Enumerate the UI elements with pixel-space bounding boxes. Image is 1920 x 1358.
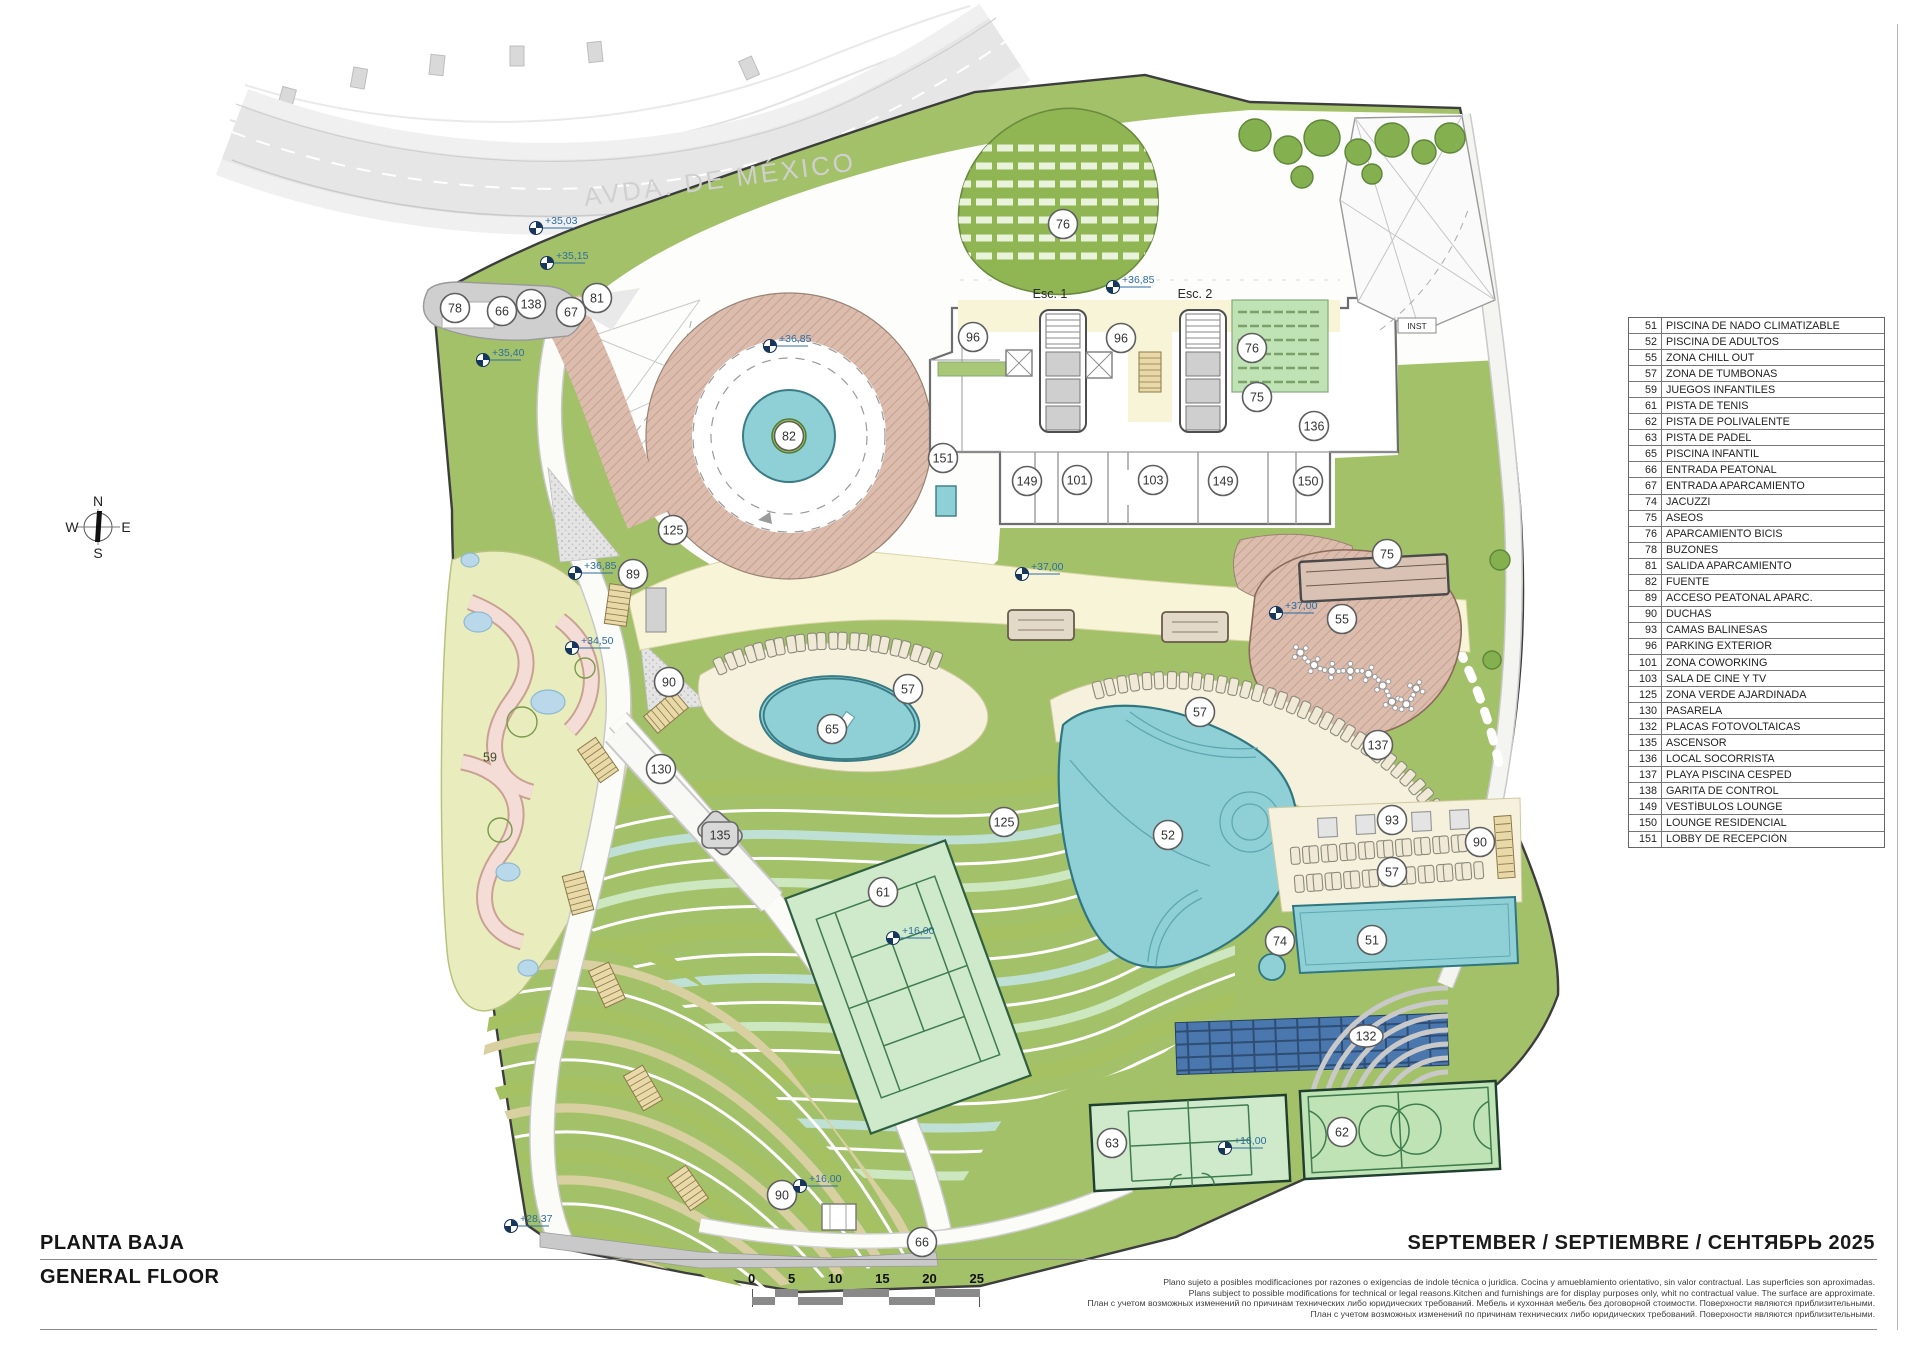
svg-text:125: 125 [663,524,684,538]
legend-item-number: 89 [1629,591,1662,606]
legend-row: 150LOUNGE RESIDENCIAL [1629,814,1884,830]
plan-label-130: 130 [647,755,676,784]
legend-item-number: 135 [1629,735,1662,750]
legend-row: 138GARITA DE CONTROL [1629,782,1884,798]
legend-item-number: 138 [1629,783,1662,798]
svg-text:N: N [93,493,103,509]
legend-row: 75ASEOS [1629,510,1884,526]
svg-text:149: 149 [1213,475,1234,489]
svg-text:+16,00: +16,00 [809,1173,842,1185]
svg-text:132: 132 [1356,1030,1377,1044]
scale-bar: 0510152025 [748,1271,984,1307]
svg-text:101: 101 [1067,474,1088,488]
legend-item-number: 51 [1629,318,1662,333]
svg-text:67: 67 [564,306,578,320]
legend-item-label: ZONA CHILL OUT [1662,352,1884,364]
sheet-title-en: GENERAL FLOOR [40,1266,219,1289]
svg-text:+37,00: +37,00 [1031,561,1064,573]
legend-item-label: ZONA COWORKING [1662,657,1884,669]
plan-label-63: 63 [1098,1129,1127,1158]
legend-row: 51PISCINA DE NADO CLIMATIZABLE [1629,318,1884,333]
svg-text:136: 136 [1304,420,1325,434]
legend-item-number: 66 [1629,462,1662,477]
plan-label-90: 90 [1466,828,1495,857]
legend-row: 81SALIDA APARCAMIENTO [1629,558,1884,574]
legend-item-label: SALA DE CINE Y TV [1662,673,1884,685]
legend-item-number: 61 [1629,398,1662,413]
legend-item-number: 90 [1629,607,1662,622]
legend-item-number: 59 [1629,382,1662,397]
legend-item-label: JACUZZI [1662,496,1884,508]
plan-label-103: 103 [1139,466,1168,495]
legend-item-label: LOUNGE RESIDENCIAL [1662,817,1884,829]
legend-item-label: JUEGOS INFANTILES [1662,384,1884,396]
svg-text:+28,37: +28,37 [520,1213,553,1225]
plan-label-74: 74 [1266,927,1295,956]
legend-item-number: 67 [1629,478,1662,493]
legend-row: 135ASCENSOR [1629,734,1884,750]
legend-item-label: PISTA DE PADEL [1662,432,1884,444]
plan-label-96: 96 [1107,324,1136,353]
legend-item-label: ACCESO PEATONAL APARC. [1662,592,1884,604]
svg-text:+16,00: +16,00 [1234,1135,1267,1147]
plan-label-138: 138 [517,290,546,319]
plan-label-65: 65 [818,715,847,744]
svg-text:125: 125 [994,816,1015,830]
svg-text:78: 78 [448,302,462,316]
legend-item-number: 93 [1629,623,1662,638]
plan-label-90: 90 [655,668,684,697]
svg-text:76: 76 [1056,218,1070,232]
svg-text:82: 82 [782,430,796,444]
svg-text:81: 81 [590,292,604,306]
page-frame-right [1897,24,1898,1330]
plan-label-125: 125 [990,808,1019,837]
plan-label-61: 61 [869,878,898,907]
legend-row: 125ZONA VERDE AJARDINADA [1629,686,1884,702]
svg-text:E: E [121,519,130,535]
svg-text:90: 90 [775,1189,789,1203]
plan-label-75: 75 [1373,540,1402,569]
scale-blocks [752,1289,980,1307]
legend-item-label: GARITA DE CONTROL [1662,785,1884,797]
plan-label-57: 57 [894,675,923,704]
legend-row: 130PASARELA [1629,702,1884,718]
svg-text:74: 74 [1273,935,1287,949]
svg-text:137: 137 [1368,739,1389,753]
plan-label-137: 137 [1364,731,1393,760]
disclaimer-text: Plano sujeto a posibles modificaciones p… [1045,1277,1875,1319]
legend-item-label: BUZONES [1662,544,1884,556]
legend-item-number: 63 [1629,430,1662,445]
legend-row: 89ACCESO PEATONAL APARC. [1629,590,1884,606]
svg-text:130: 130 [651,763,672,777]
legend-row: 149VESTÍBULOS LOUNGE [1629,798,1884,814]
plan-label-52: 52 [1154,821,1183,850]
legend-row: 52PISCINA DE ADULTOS [1629,333,1884,349]
legend-item-number: 101 [1629,655,1662,670]
svg-text:57: 57 [901,683,915,697]
svg-text:52: 52 [1161,829,1175,843]
legend-item-label: ZONA VERDE AJARDINADA [1662,689,1884,701]
plan-label-51: 51 [1358,926,1387,955]
plan-label-66: 66 [908,1228,937,1257]
legend-item-label: PISTA DE TENIS [1662,400,1884,412]
plan-label-66: 66 [488,297,517,326]
sheet-title-es: PLANTA BAJA [40,1232,184,1255]
svg-text:+16,00: +16,00 [902,925,935,937]
svg-text:75: 75 [1380,548,1394,562]
legend-item-number: 74 [1629,495,1662,510]
svg-text:96: 96 [966,331,980,345]
svg-text:66: 66 [495,305,509,319]
legend-item-number: 136 [1629,751,1662,766]
svg-text:+35,15: +35,15 [556,250,589,262]
legend-item-label: PISCINA INFANTIL [1662,448,1884,460]
svg-text:76: 76 [1245,342,1259,356]
legend-row: 57ZONA DE TUMBONAS [1629,365,1884,381]
plan-label-101: 101 [1063,466,1092,495]
plan-label-76: 76 [1049,210,1078,239]
svg-text:135: 135 [710,829,731,843]
site-plan-sheet: { "title_block": { "title_es": "PLANTA B… [0,0,1920,1358]
plan-label-57: 57 [1378,858,1407,887]
legend-row: 136LOCAL SOCORRISTA [1629,750,1884,766]
plan-label-78: 78 [441,294,470,323]
legend-item-number: 55 [1629,350,1662,365]
svg-text:75: 75 [1250,391,1264,405]
legend-item-label: PISTA DE POLIVALENTE [1662,416,1884,428]
svg-text:90: 90 [662,676,676,690]
svg-text:+36,85: +36,85 [584,560,617,572]
plan-text: INST [1407,321,1426,331]
svg-text:+37,00: +37,00 [1285,600,1318,612]
legend-item-label: DUCHAS [1662,608,1884,620]
plan-label-125: 125 [659,516,688,545]
legend-item-number: 62 [1629,414,1662,429]
legend-item-number: 81 [1629,559,1662,574]
legend-item-label: PISCINA DE NADO CLIMATIZABLE [1662,320,1884,332]
legend-row: 59JUEGOS INFANTILES [1629,381,1884,397]
plan-label-89: 89 [619,560,648,589]
legend-row: 61PISTA DE TENIS [1629,397,1884,413]
plan-label-149: 149 [1209,467,1238,496]
legend-item-number: 137 [1629,767,1662,782]
plan-label-75: 75 [1243,383,1272,412]
legend-row: 90DUCHAS [1629,606,1884,622]
legend-item-number: 76 [1629,527,1662,542]
legend-item-label: APARCAMIENTO BICIS [1662,528,1884,540]
svg-text:138: 138 [521,298,542,312]
legend-row: 78BUZONES [1629,542,1884,558]
legend-table: 51PISCINA DE NADO CLIMATIZABLE52PISCINA … [1628,317,1885,848]
plan-label-90: 90 [768,1181,797,1210]
legend-row: 101ZONA COWORKING [1629,654,1884,670]
legend-row: 55ZONA CHILL OUT [1629,349,1884,365]
plan-label-67: 67 [557,298,586,327]
svg-text:149: 149 [1017,475,1038,489]
legend-row: 67ENTRADA APARCAMIENTO [1629,477,1884,493]
legend-row: 65PISCINA INFANTIL [1629,445,1884,461]
svg-text:+36,85: +36,85 [1122,274,1155,286]
svg-text:63: 63 [1105,1137,1119,1151]
plan-label-62: 62 [1328,1118,1357,1147]
legend-item-number: 130 [1629,703,1662,718]
compass-rose: N S W E [65,493,130,561]
plan-text: Esc. 2 [1178,287,1213,301]
svg-text:+35,03: +35,03 [545,215,578,227]
sheet-date: SEPTEMBER / SEPTIEMBRE / СЕНТЯБРЬ 2025 [1407,1232,1875,1255]
svg-text:96: 96 [1114,332,1128,346]
plan-label-136: 136 [1300,412,1329,441]
legend-item-number: 57 [1629,366,1662,381]
legend-item-number: 65 [1629,446,1662,461]
svg-text:151: 151 [933,452,954,466]
plan-label-82: 82 [775,422,804,451]
legend-item-number: 52 [1629,334,1662,349]
legend-row: 151LOBBY DE RECEPCIÓN [1629,831,1884,847]
legend-item-label: PLAYA PISCINA CESPED [1662,769,1884,781]
plan-label-151: 151 [929,444,958,473]
footer-divider [40,1259,1877,1260]
svg-text:57: 57 [1193,706,1207,720]
legend-item-number: 150 [1629,815,1662,830]
legend-item-label: ASCENSOR [1662,737,1884,749]
legend-row: 137PLAYA PISCINA CESPED [1629,766,1884,782]
legend-item-label: SALIDA APARCAMIENTO [1662,560,1884,572]
legend-item-number: 96 [1629,639,1662,654]
legend-item-number: 75 [1629,511,1662,526]
legend-item-number: 103 [1629,671,1662,686]
legend-row: 74JACUZZI [1629,494,1884,510]
legend-row: 76APARCAMIENTO BICIS [1629,526,1884,542]
svg-text:93: 93 [1385,814,1399,828]
legend-item-label: PASARELA [1662,705,1884,717]
legend-item-label: PARKING EXTERIOR [1662,640,1884,652]
plan-label-59: 59 [483,751,497,765]
legend-item-label: FUENTE [1662,576,1884,588]
legend-row: 63PISTA DE PADEL [1629,429,1884,445]
plan-label-81: 81 [583,284,612,313]
legend-item-number: 149 [1629,799,1662,814]
plan-text: Esc. 1 [1033,287,1068,301]
svg-text:57: 57 [1385,866,1399,880]
svg-text:55: 55 [1335,613,1349,627]
legend-item-label: LOCAL SOCORRISTA [1662,753,1884,765]
svg-text:61: 61 [876,886,890,900]
svg-text:89: 89 [626,568,640,582]
svg-text:62: 62 [1335,1126,1349,1140]
legend-row: 62PISTA DE POLIVALENTE [1629,413,1884,429]
legend-row: 93CAMAS BALINESAS [1629,622,1884,638]
svg-text:+35,40: +35,40 [492,347,525,359]
legend-item-label: PLACAS FOTOVOLTAICAS [1662,721,1884,733]
legend-item-label: LOBBY DE RECEPCIÓN [1662,833,1884,845]
legend-item-label: ENTRADA APARCAMIENTO [1662,480,1884,492]
svg-text:+36,85: +36,85 [779,333,812,345]
legend-item-label: ZONA DE TUMBONAS [1662,368,1884,380]
svg-text:+34,50: +34,50 [581,635,614,647]
svg-text:150: 150 [1298,475,1319,489]
legend-row: 103SALA DE CINE Y TV [1629,670,1884,686]
legend-row: 66ENTRADA PEATONAL [1629,461,1884,477]
svg-text:66: 66 [915,1236,929,1250]
plan-label-132: 132 [1349,1025,1383,1047]
legend-item-number: 125 [1629,687,1662,702]
scale-numbers: 0510152025 [748,1271,984,1286]
plan-label-93: 93 [1378,806,1407,835]
svg-text:65: 65 [825,723,839,737]
legend-item-label: PISCINA DE ADULTOS [1662,336,1884,348]
svg-text:W: W [65,519,79,535]
legend-item-label: ASEOS [1662,512,1884,524]
legend-item-number: 151 [1629,832,1662,847]
legend-row: 96PARKING EXTERIOR [1629,638,1884,654]
svg-text:90: 90 [1473,836,1487,850]
plan-label-149: 149 [1013,467,1042,496]
legend-item-number: 132 [1629,719,1662,734]
plan-label-150: 150 [1294,467,1323,496]
svg-text:S: S [93,545,102,561]
legend-item-label: CAMAS BALINESAS [1662,624,1884,636]
plan-label-135: 135 [702,822,738,848]
plan-label-55: 55 [1328,605,1357,634]
page-bottom-rule [40,1329,1877,1330]
legend-row: 132PLACAS FOTOVOLTAICAS [1629,718,1884,734]
plan-label-76: 76 [1238,334,1267,363]
legend-item-label: ENTRADA PEATONAL [1662,464,1884,476]
legend-item-label: VESTÍBULOS LOUNGE [1662,801,1884,813]
svg-text:103: 103 [1143,474,1164,488]
legend-row: 82FUENTE [1629,574,1884,590]
svg-text:59: 59 [483,751,497,765]
svg-text:51: 51 [1365,934,1379,948]
legend-item-number: 82 [1629,575,1662,590]
plan-label-96: 96 [959,323,988,352]
plan-label-57: 57 [1186,698,1215,727]
legend-item-number: 78 [1629,543,1662,558]
